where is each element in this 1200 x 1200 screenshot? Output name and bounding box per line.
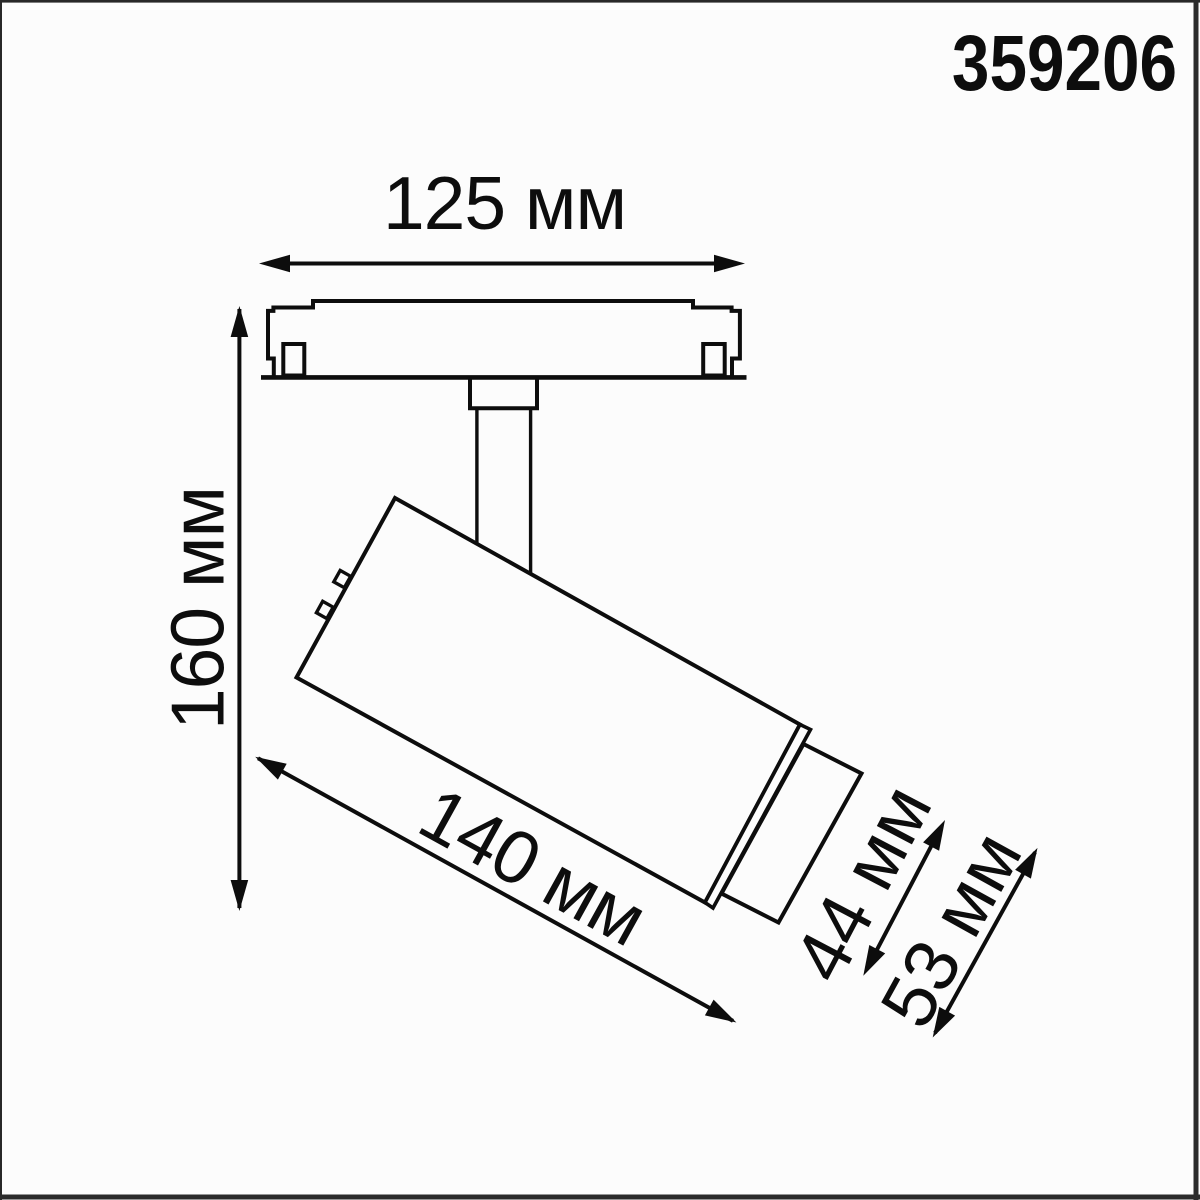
- svg-text:160 мм: 160 мм: [156, 487, 240, 730]
- svg-text:125 мм: 125 мм: [383, 161, 626, 245]
- svg-text:359206: 359206: [952, 19, 1177, 107]
